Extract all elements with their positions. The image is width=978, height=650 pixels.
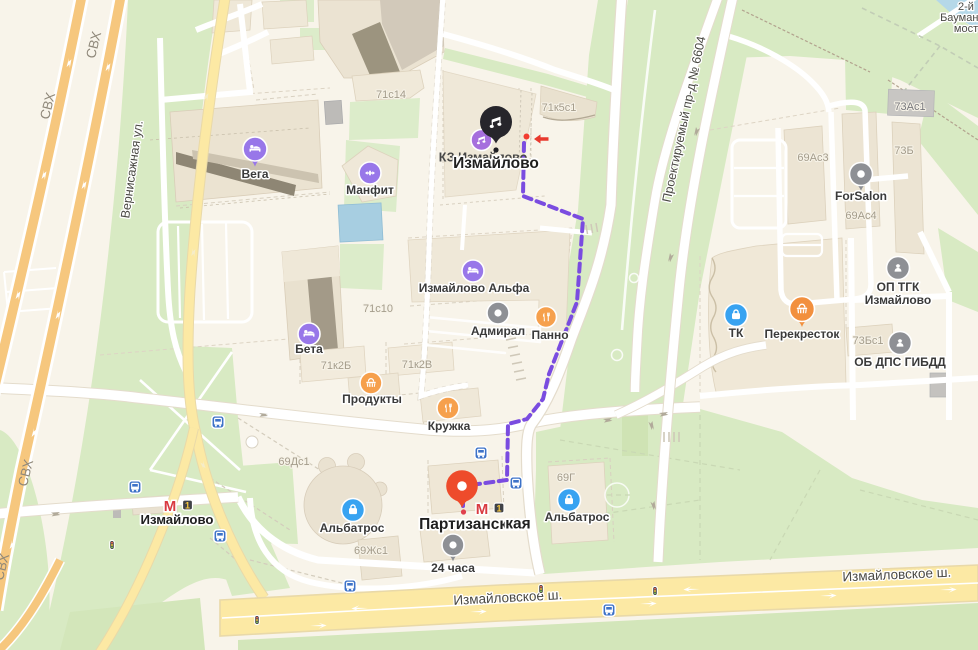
svg-text:Измайлово: Измайлово xyxy=(453,155,539,172)
svg-text:Измайлово Альфа: Измайлово Альфа xyxy=(419,281,530,295)
svg-text:71с10: 71с10 xyxy=(363,303,393,315)
svg-text:71к5с1: 71к5с1 xyxy=(542,102,577,114)
svg-text:71к2В: 71к2В xyxy=(402,359,433,371)
svg-text:69Ас3: 69Ас3 xyxy=(797,152,828,164)
svg-text:69Дс1: 69Дс1 xyxy=(278,456,309,468)
svg-text:Адмирал: Адмирал xyxy=(471,324,525,338)
svg-text:Измайлово: Измайлово xyxy=(141,512,214,527)
svg-text:69Жс1: 69Жс1 xyxy=(354,545,388,557)
svg-text:69Ас4: 69Ас4 xyxy=(845,210,876,222)
svg-text:ForSalon: ForSalon xyxy=(835,189,887,203)
svg-text:71с14: 71с14 xyxy=(376,89,406,101)
svg-text:Перекресток: Перекресток xyxy=(765,327,841,341)
svg-text:69Г: 69Г xyxy=(557,472,575,484)
svg-text:Измайлово: Измайлово xyxy=(865,293,931,307)
svg-text:73Б: 73Б xyxy=(894,145,913,157)
svg-text:ОБ ДПС ГИБДД: ОБ ДПС ГИБДД xyxy=(854,355,946,369)
svg-text:73Ас1: 73Ас1 xyxy=(894,101,925,113)
svg-text:Панно: Панно xyxy=(531,328,568,342)
svg-text:мост: мост xyxy=(954,23,978,35)
svg-text:Бета: Бета xyxy=(295,342,323,356)
svg-text:Вега: Вега xyxy=(241,167,268,181)
svg-text:71к2Б: 71к2Б xyxy=(321,360,351,372)
svg-text:кая: кая xyxy=(505,516,530,533)
svg-text:24 часа: 24 часа xyxy=(431,561,475,575)
svg-text:ТК: ТК xyxy=(729,326,744,340)
svg-text:ОП ТГК: ОП ТГК xyxy=(877,280,920,294)
svg-text:73Бс1: 73Бс1 xyxy=(852,335,883,347)
svg-text:Альбатрос: Альбатрос xyxy=(320,521,385,535)
svg-text:Альбатрос: Альбатрос xyxy=(545,510,610,524)
svg-text:Продукты: Продукты xyxy=(342,392,402,406)
svg-text:Кружка: Кружка xyxy=(428,419,471,433)
svg-text:Манфит: Манфит xyxy=(346,183,394,197)
